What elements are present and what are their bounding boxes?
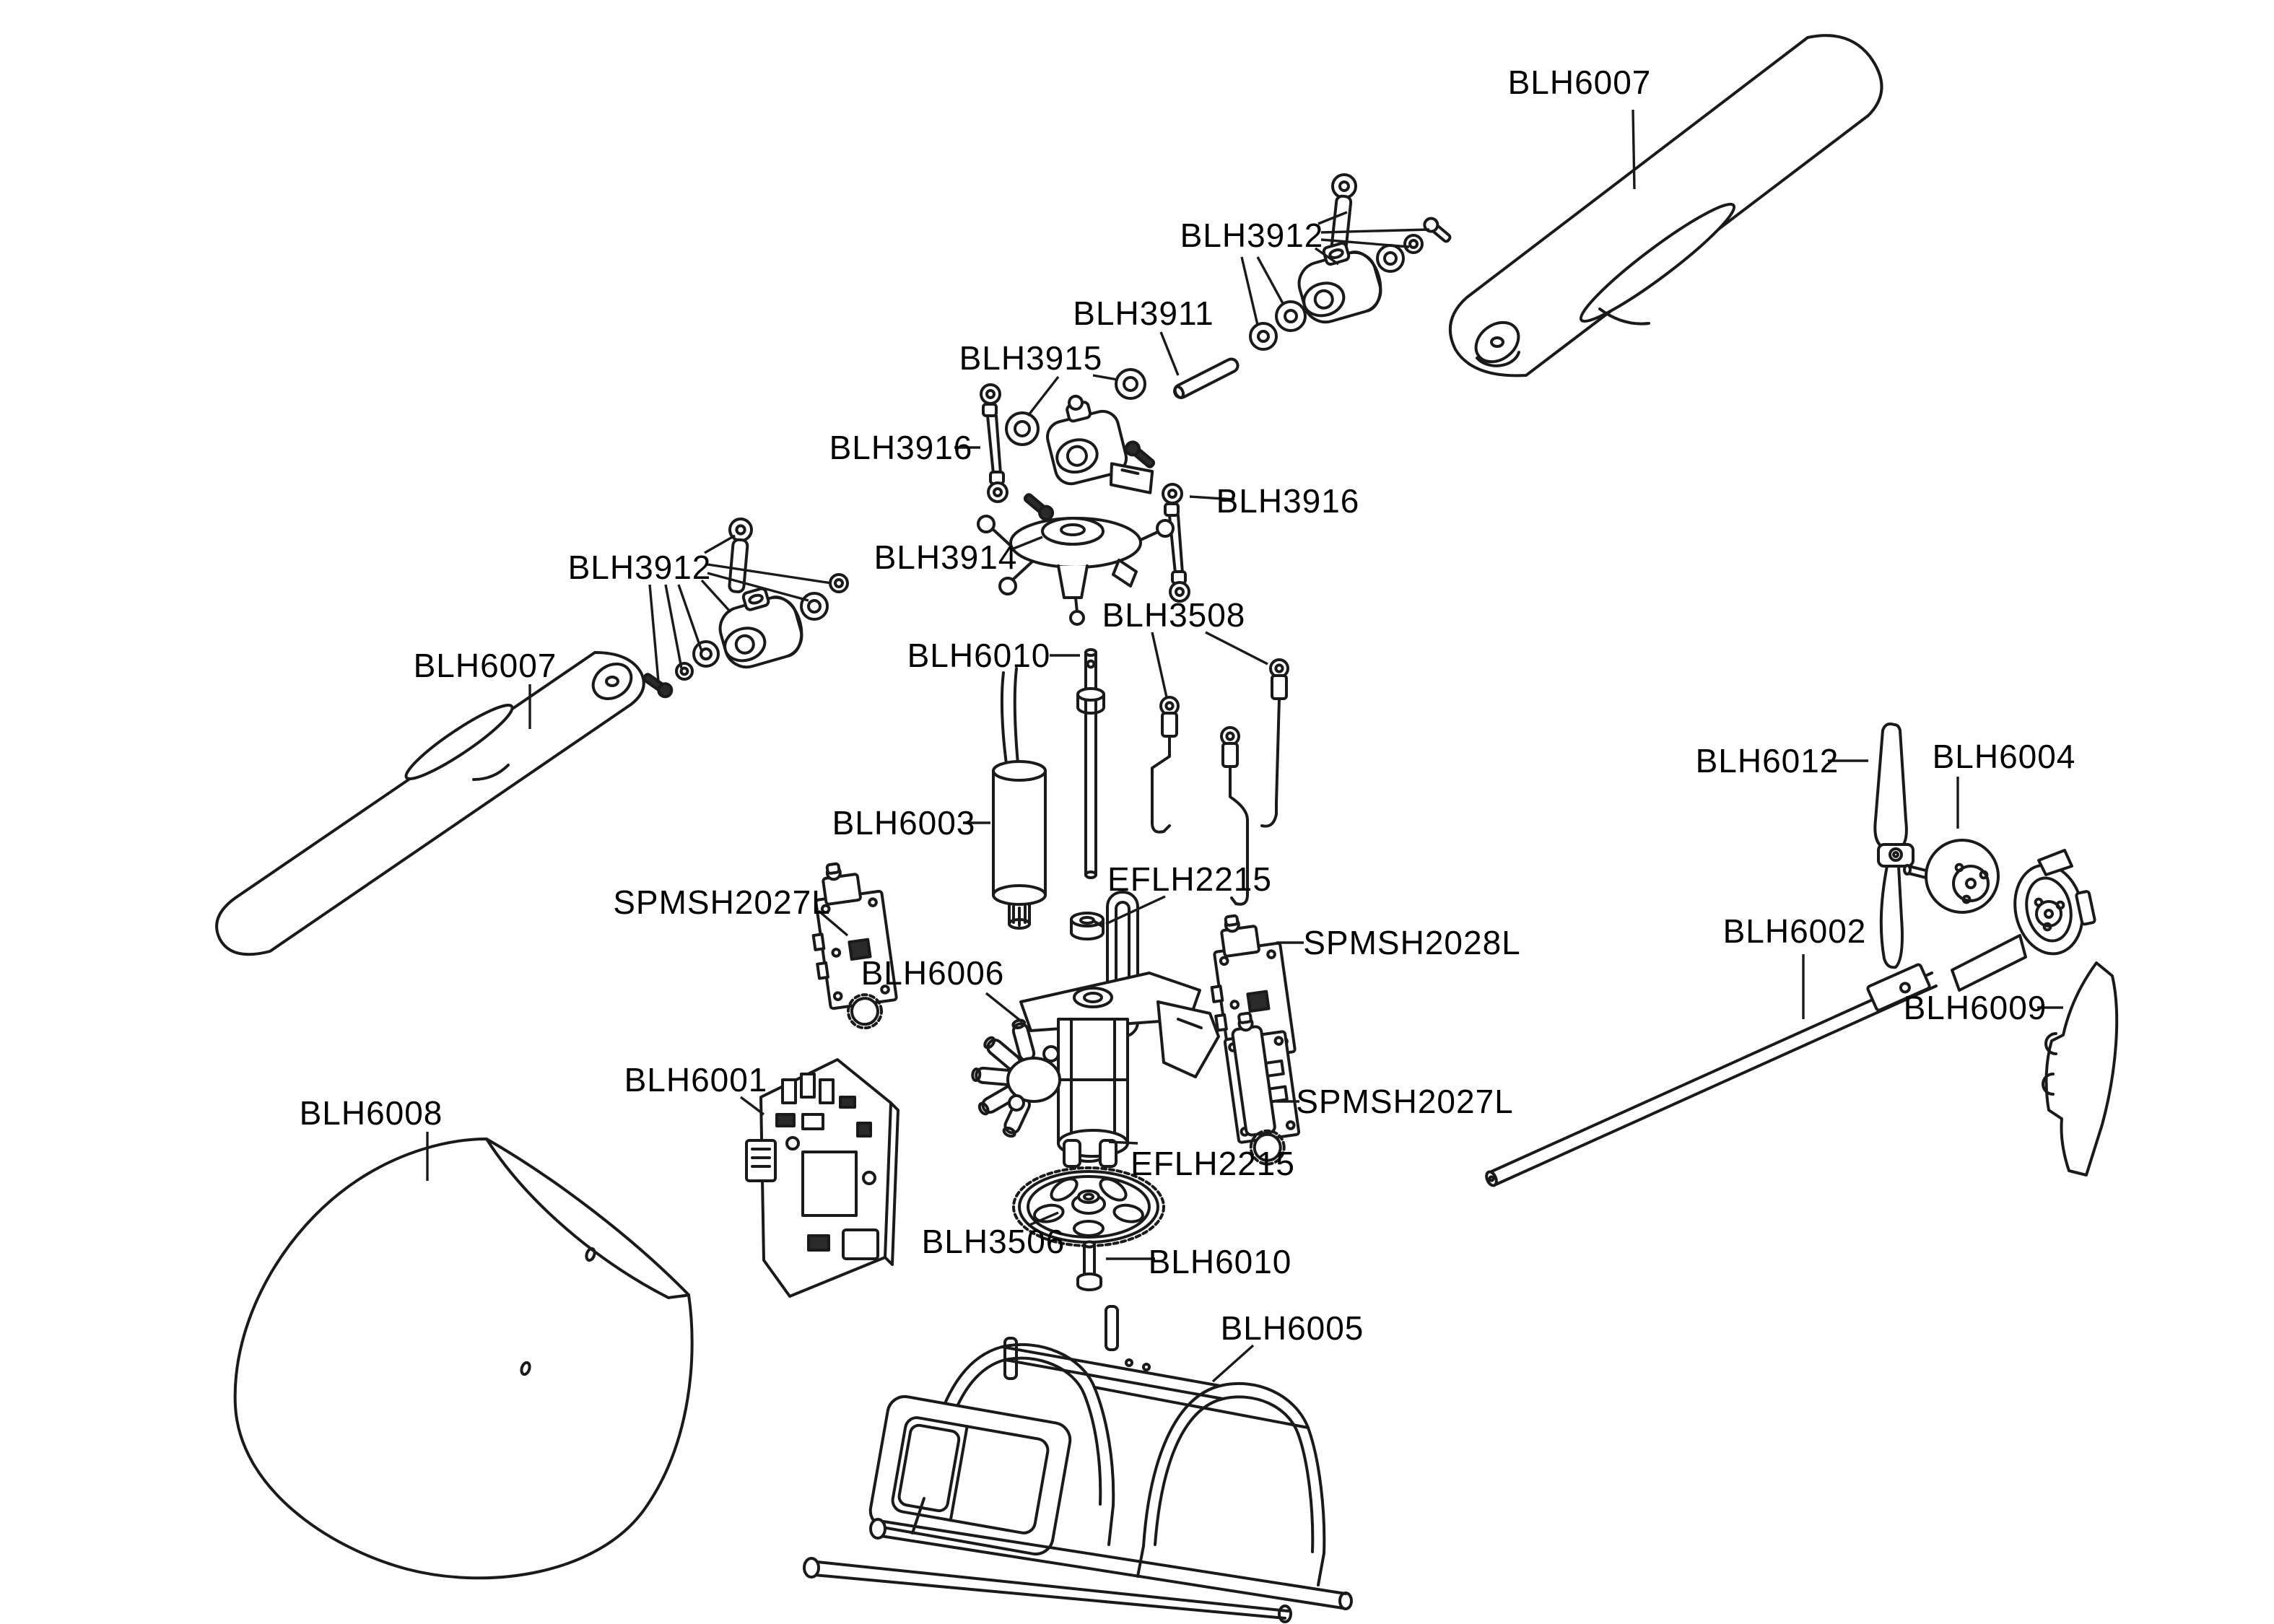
feathering-spindle: [1172, 357, 1240, 400]
tail-boom: [1484, 964, 1936, 1187]
part-label-blh6006: BLH6006: [861, 954, 1005, 992]
part-label-blh3508: BLH3508: [1102, 596, 1246, 634]
landing-skid: [804, 1306, 1351, 1622]
part-label-eflh2215-bottom: EFLH2215: [1131, 1145, 1295, 1182]
part-label-blh6010-top: BLH6010: [907, 637, 1051, 674]
part-label-blh6005: BLH6005: [1221, 1309, 1364, 1347]
part-label-blh3912-top: BLH3912: [1180, 217, 1324, 254]
tail-motor: [1904, 840, 1998, 912]
part-label-blh3911: BLH3911: [1073, 294, 1214, 332]
part-label-blh6007-left: BLH6007: [414, 647, 557, 684]
leader-line-blh6005: [1213, 1345, 1253, 1381]
part-label-blh3915: BLH3915: [959, 339, 1103, 377]
exploded-parts-diagram: BLH6007BLH3912BLH3911BLH3915BLH3916BLH39…: [0, 0, 2274, 1624]
leader-line-blh3912-left: [679, 585, 702, 651]
leader-line-eflh2215-bottom: [1109, 1142, 1138, 1143]
linkage-rod-left: [981, 385, 1007, 502]
main-rotor-hub: [1006, 370, 1157, 522]
diagram-canvas: BLH6007BLH3912BLH3911BLH3915BLH3916BLH39…: [0, 0, 2274, 1624]
diagram-artwork: [217, 35, 2117, 1622]
hub-screw-a: [1022, 492, 1055, 523]
part-label-blh6012: BLH6012: [1696, 742, 1839, 780]
main-rotor-grip-set-left: [641, 519, 848, 699]
leader-line-blh3508: [1152, 632, 1167, 697]
leader-line-blh3912-top: [1242, 257, 1258, 325]
leader-line-blh3912-left: [707, 564, 832, 583]
battery-tray: [868, 1394, 1073, 1557]
leader-line-blh3915: [1028, 377, 1058, 416]
leader-line-blh3508: [1206, 632, 1268, 664]
main-shaft: [1078, 650, 1104, 878]
part-label-blh6010-bottom: BLH6010: [1149, 1243, 1292, 1280]
part-label-spmsh2028l: SPMSH2028L: [1303, 924, 1521, 961]
part-label-blh3912-left: BLH3912: [568, 549, 712, 586]
main-rotor-blade-left: [217, 652, 644, 954]
linkage-rod-right: [1163, 484, 1189, 601]
part-label-blh6004: BLH6004: [1933, 738, 2076, 775]
main-frame: [972, 892, 1219, 1166]
part-label-blh6002: BLH6002: [1723, 912, 1867, 950]
rubber-grommet-top: [1071, 913, 1103, 939]
tail-rotor: [1875, 724, 1913, 967]
shaft-screw: [1078, 1241, 1101, 1290]
spindle-washers: [1250, 302, 1305, 349]
canopy: [235, 1139, 692, 1578]
part-label-blh6009: BLH6009: [1904, 989, 2047, 1026]
leader-line-blh6006: [986, 993, 1022, 1022]
part-label-blh6007-top: BLH6007: [1508, 64, 1652, 101]
part-label-eflh2215-top: EFLH2215: [1107, 860, 1272, 898]
part-label-blh6003: BLH6003: [832, 804, 976, 842]
leader-line-blh3912-left: [650, 585, 658, 681]
leader-line-blh3912-left: [666, 585, 681, 668]
leader-line-blh3911: [1161, 332, 1178, 375]
leader-line-blh3912-top: [1258, 257, 1284, 305]
control-board: [746, 1060, 898, 1296]
leader-line-blh6007-top: [1633, 110, 1634, 189]
part-label-blh6008: BLH6008: [300, 1094, 443, 1132]
main-motor: [993, 668, 1045, 928]
part-label-blh3506: BLH3506: [922, 1223, 1066, 1260]
part-label-blh3916-left: BLH3916: [829, 429, 973, 466]
rotor-grip: [712, 581, 808, 672]
part-label-spmsh2027l-left: SPMSH2027L: [613, 883, 831, 921]
tail-fin: [2043, 963, 2117, 1175]
part-label-blh6001: BLH6001: [624, 1061, 768, 1099]
part-label-blh3916-right: BLH3916: [1216, 482, 1360, 520]
part-label-spmsh2027l-right: SPMSH2027L: [1296, 1083, 1514, 1120]
part-label-blh3914: BLH3914: [874, 538, 1018, 576]
